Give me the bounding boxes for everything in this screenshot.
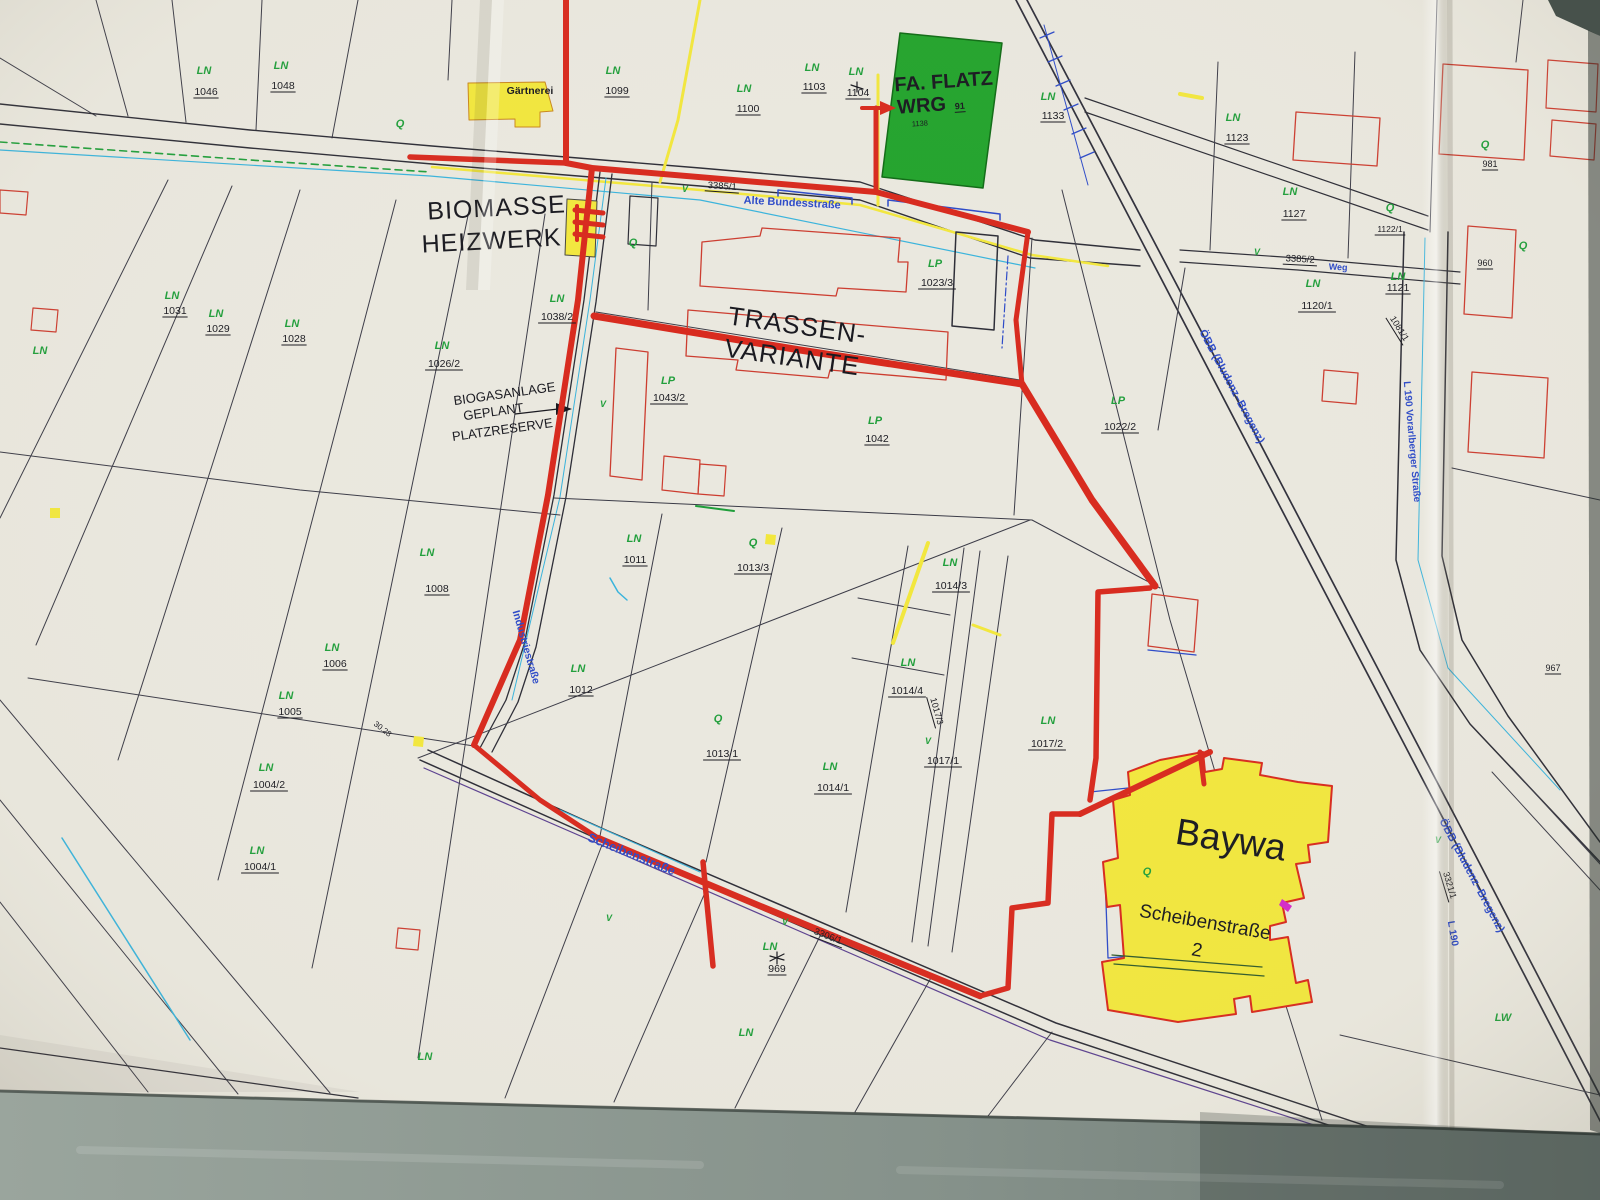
photo-vignette bbox=[0, 0, 1600, 1200]
right-fold-shadow-line bbox=[1450, 0, 1452, 1128]
right-fold-highlight bbox=[1422, 0, 1448, 1128]
cadastral-map-svg: BIOMASSEHEIZWERKTRASSEN-VARIANTEBIOGASAN… bbox=[0, 0, 1600, 1200]
paper-edge-right bbox=[1588, 30, 1600, 1133]
map-photo: BIOMASSEHEIZWERKTRASSEN-VARIANTEBIOGASAN… bbox=[0, 0, 1600, 1200]
